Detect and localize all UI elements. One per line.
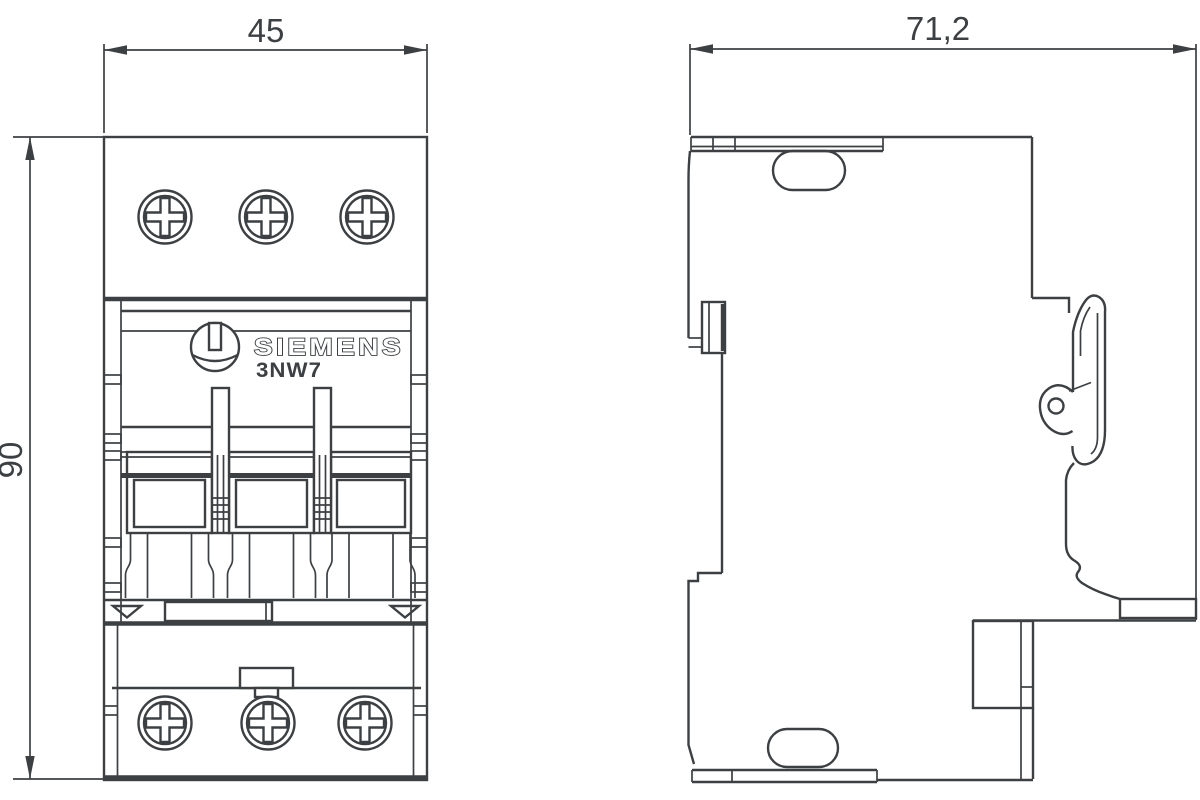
rail-ticks-left [104,375,121,592]
front-bottom-terminal-block [104,625,427,778]
front-marker-row [104,600,427,624]
front-width-label: 45 [248,12,285,49]
side-bottom-flange [692,729,1033,782]
screw-icon [339,697,392,750]
drawing-canvas: 45 90 [0,0,1200,800]
fuse-windows [127,452,411,533]
rail-ticks-right [411,375,427,592]
side-bottom-right [973,599,1196,779]
arrowhead-left [690,44,713,53]
arrowhead-left [104,45,127,54]
din-rail-release-lever [1040,296,1120,599]
screw-icon [242,697,295,750]
front-width-dimension: 45 [104,12,427,133]
front-top-terminal-screws [139,191,394,244]
side-depth-dimension: 71,2 [690,10,1196,620]
screw-icon [240,191,293,244]
screw-icon [139,191,192,244]
lever-pivot [1040,385,1073,434]
front-height-dimension: 90 [0,137,104,779]
arrowhead-top [25,137,34,160]
cover-screw-icon [191,323,239,371]
triangle-marker-right [391,606,419,618]
front-height-label: 90 [0,442,29,479]
triangle-marker-left [113,606,141,618]
arrowhead-bottom [25,756,34,779]
front-view: 45 90 [0,12,427,780]
side-depth-label: 71,2 [906,10,970,47]
arrowhead-right [404,45,427,54]
center-tab [240,668,293,688]
side-left-profile [689,151,726,764]
din-clip-block [973,621,1033,708]
screw-icon [139,697,192,750]
brand-logo-text: SIEMENS [254,334,404,361]
fixed-claw [1120,599,1196,618]
technical-dimension-drawing: 45 90 [0,0,1200,800]
front-bottom-terminal-screws [139,697,392,750]
front-window-band [121,452,411,476]
model-number-text: 3NW7 [256,359,322,382]
top-slot-opening [773,151,845,190]
side-top-flange [691,137,1032,190]
fuse-pull-bars [212,388,331,533]
screw-icon [341,191,394,244]
fuse-clips [126,533,416,598]
side-view: 71,2 [689,10,1197,782]
arrowhead-right [1173,44,1196,53]
bottom-slot-opening [768,729,838,767]
side-right-profile [1032,137,1069,313]
marker-plate [165,602,272,621]
